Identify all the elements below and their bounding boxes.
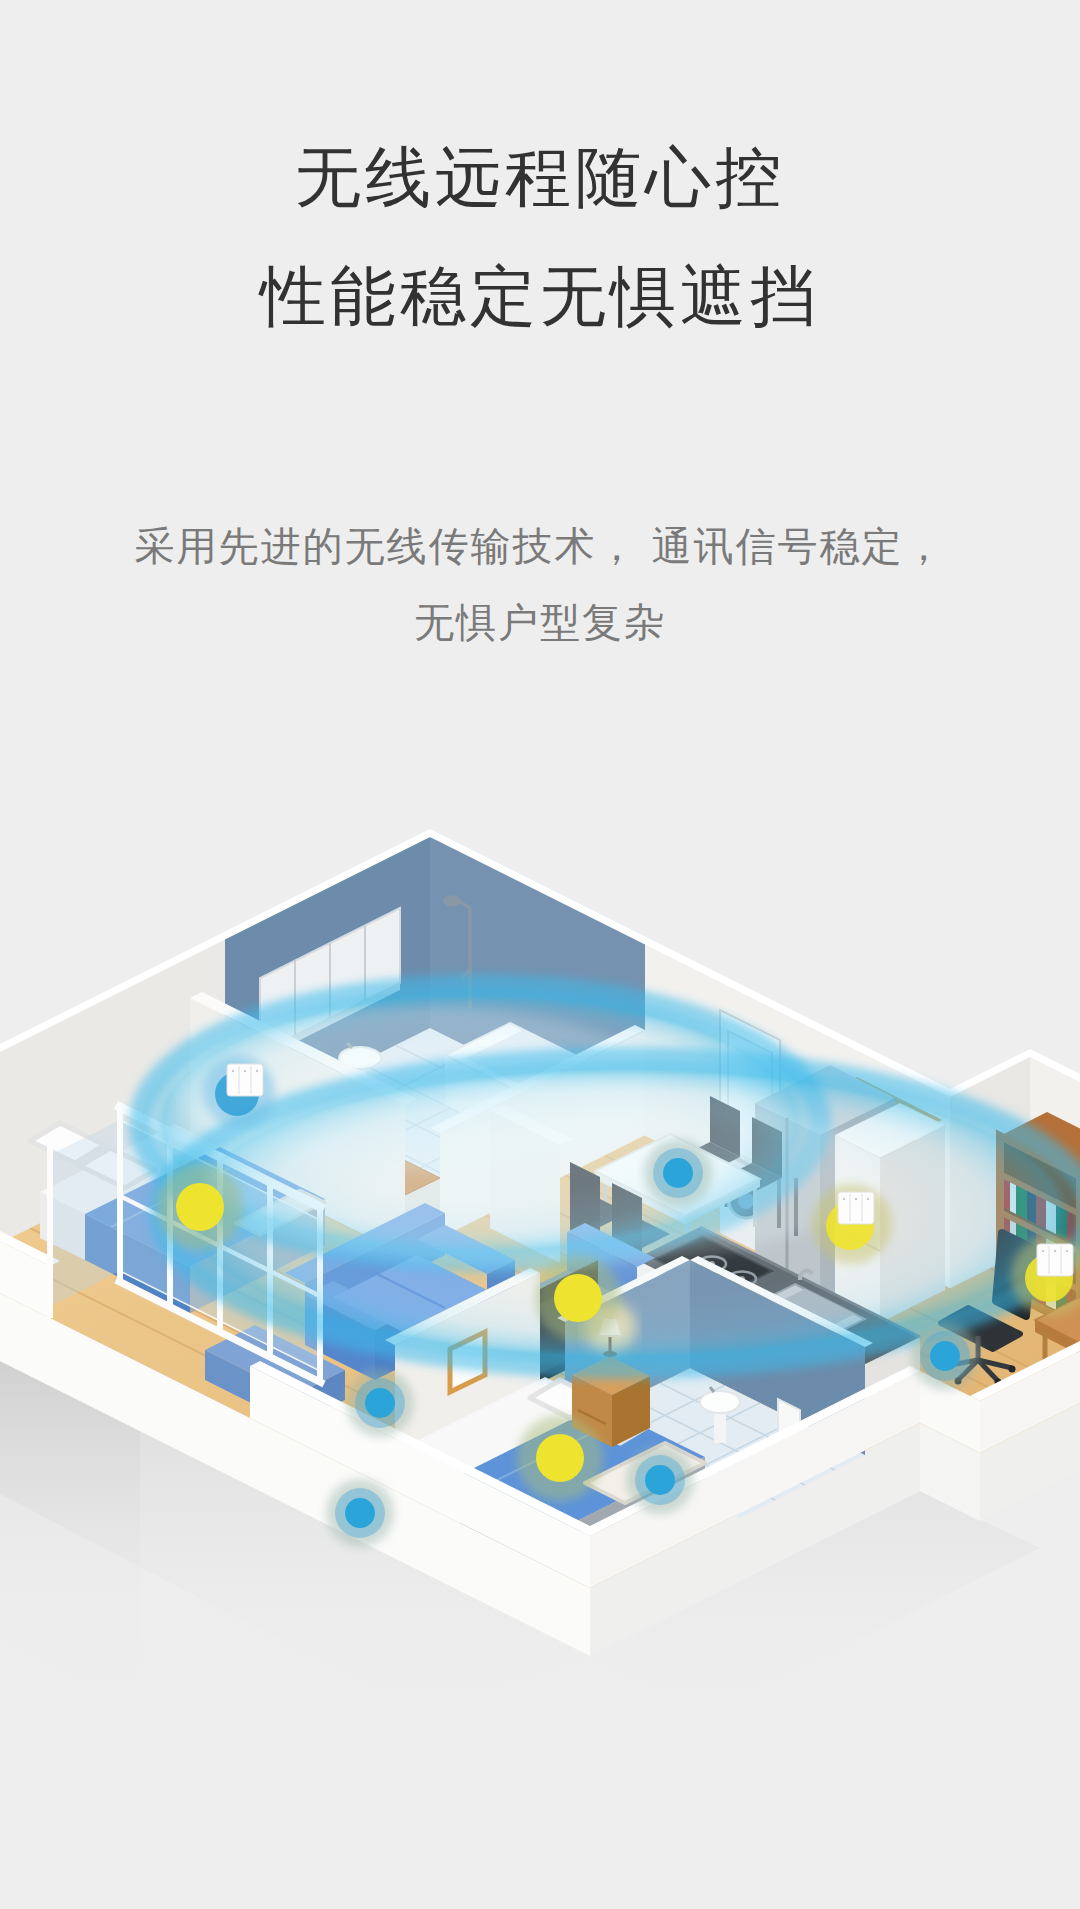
signal-dot-blue [346,1369,414,1437]
signal-dot-yellow [517,1415,603,1501]
subtitle-line-2: 无惧户型复杂 [0,584,1080,660]
wireless-switch [812,1184,892,1264]
signal-dot-yellow [535,1255,621,1341]
signal-dot-blue [644,1139,712,1207]
wireless-switch [203,1056,275,1128]
signal-dot-blue [626,1446,694,1514]
signal-dot-blue [326,1479,394,1547]
title-line-2: 性能稳定无惧遮挡 [0,237,1080,356]
floorplan-illustration [0,668,1080,1728]
pedestal-sink-2 [700,1391,740,1413]
page-subtitle: 采用先进的无线传输技术， 通讯信号稳定， 无惧户型复杂 [0,508,1080,660]
hero-copy: 无线远程随心控 性能稳定无惧遮挡 采用先进的无线传输技术， 通讯信号稳定， 无惧… [0,0,1080,660]
signal-ring [160,1058,1080,1368]
signal-dot-blue [911,1322,979,1390]
title-line-1: 无线远程随心控 [0,118,1080,237]
page-title: 无线远程随心控 性能稳定无惧遮挡 [0,118,1080,356]
subtitle-line-1: 采用先进的无线传输技术， 通讯信号稳定， [0,508,1080,584]
signal-dot-yellow [157,1164,243,1250]
